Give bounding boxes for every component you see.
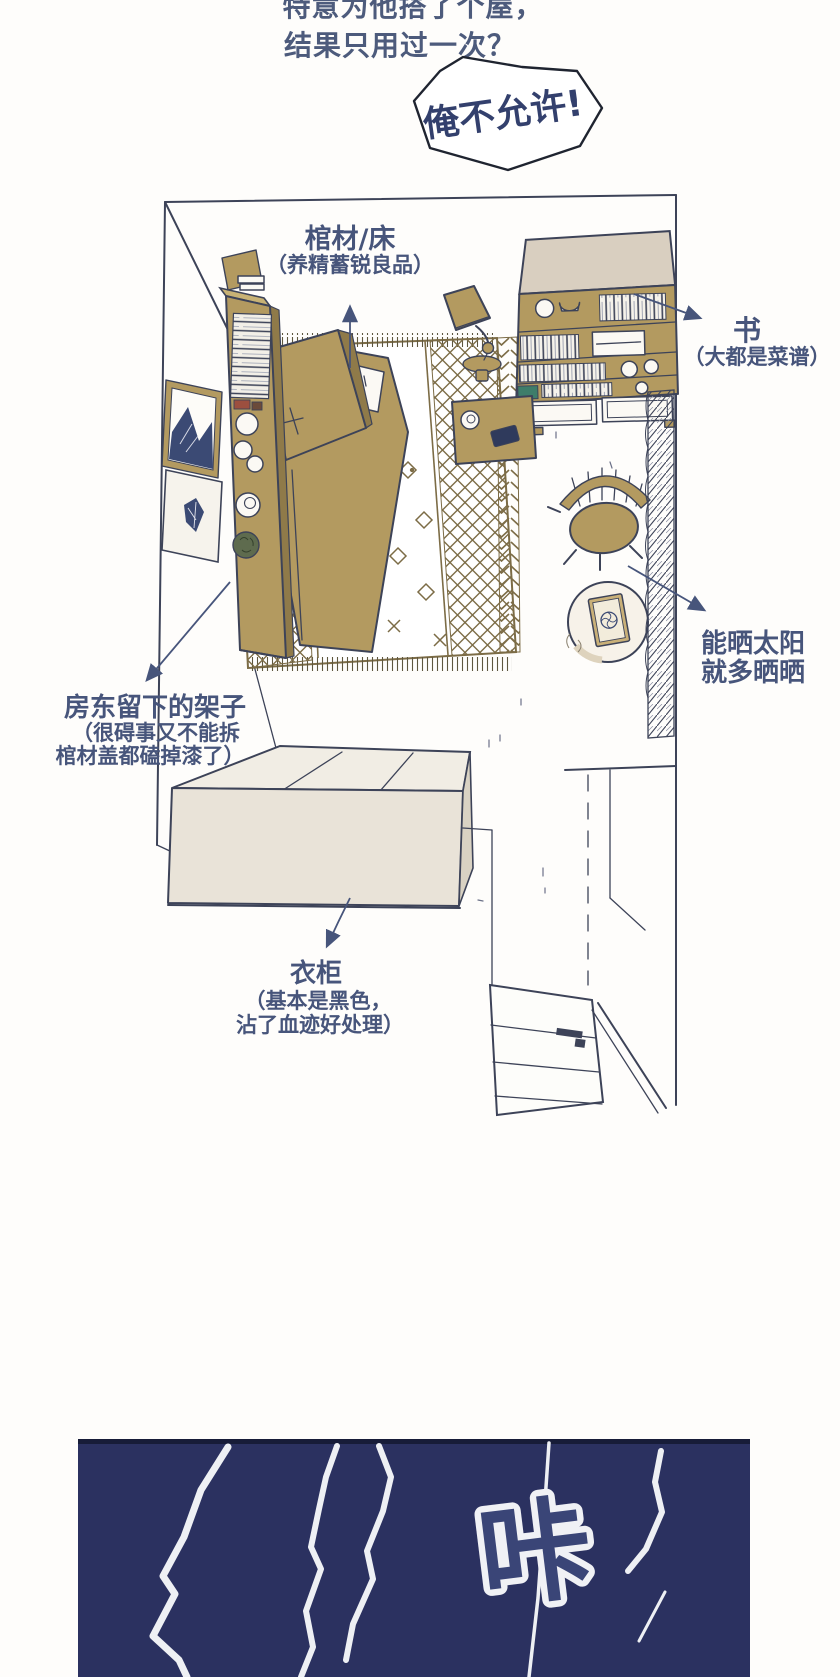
- shelf-cup: [236, 413, 258, 435]
- narration-line-2: 结果只用过一次？: [284, 29, 516, 62]
- sun-label-line2: 就多晒晒: [701, 658, 805, 688]
- chair-seat: [568, 500, 641, 557]
- wardrobe-label-title: 衣柜: [290, 958, 342, 989]
- speech-bubble: 俺不允许!: [414, 57, 602, 170]
- bookshelf-books-row1: [599, 293, 666, 321]
- chair: [548, 468, 650, 570]
- comic-page: 特意为他搭了个屋， 结果只用过一次？ 俺不允许!: [0, 0, 840, 1677]
- bookshelf-books-row2: [520, 335, 579, 361]
- wardrobe: [168, 746, 473, 908]
- sfx-crack-text: 咔: [472, 1483, 599, 1626]
- sfx-panel-background: [78, 1439, 750, 1677]
- shelf-plant: [233, 532, 259, 558]
- entry-door: [490, 985, 603, 1115]
- books-label-title: 书: [733, 314, 761, 347]
- books-label-subtitle: （大都是菜谱）: [684, 345, 831, 369]
- bookshelf-books-row3: [519, 363, 605, 382]
- entry-hall: [463, 775, 666, 1115]
- shelf-label-subtitle2: 棺材盖都磕掉漆了）: [56, 744, 245, 768]
- lamp-shade: [444, 286, 490, 330]
- picture-frames: [162, 380, 222, 562]
- radiator: [646, 390, 675, 738]
- bookshelf-top: [518, 231, 675, 294]
- side-table: [567, 582, 648, 662]
- shelf-label-title: 房东留下的架子: [64, 692, 246, 723]
- wardrobe-label-subtitle1: （基本是黑色，: [245, 989, 392, 1013]
- coffin-label-subtitle: （养精蓄锐良品）: [266, 253, 434, 277]
- coffin-label-title: 棺材/床: [305, 223, 396, 255]
- narration-block: 特意为他搭了个屋， 结果只用过一次？: [282, 0, 543, 62]
- small-desk: [452, 396, 536, 464]
- sun-label-line1: 能晒太阳: [701, 628, 805, 659]
- page-artwork: 特意为他搭了个屋， 结果只用过一次？ 俺不允许!: [0, 0, 840, 1677]
- wardrobe-front: [168, 788, 463, 906]
- wall-shelf: [220, 250, 294, 658]
- shelf-book-stack: [231, 313, 272, 398]
- wardrobe-label-subtitle2: 沾了血迹好处理）: [236, 1013, 404, 1037]
- room-diagram: 棺材/床 （养精蓄锐良品） 书 （大都是菜谱） 房东留下的架子 （很碍事又不能拆…: [56, 195, 831, 1115]
- shelf-label-subtitle1: （很碍事又不能拆: [72, 721, 240, 745]
- tarot-card: [588, 594, 630, 647]
- sfx-panel: 咔: [78, 1439, 750, 1677]
- shelf-bowl: [236, 493, 260, 517]
- narration-line-1: 特意为他搭了个屋，: [282, 0, 543, 23]
